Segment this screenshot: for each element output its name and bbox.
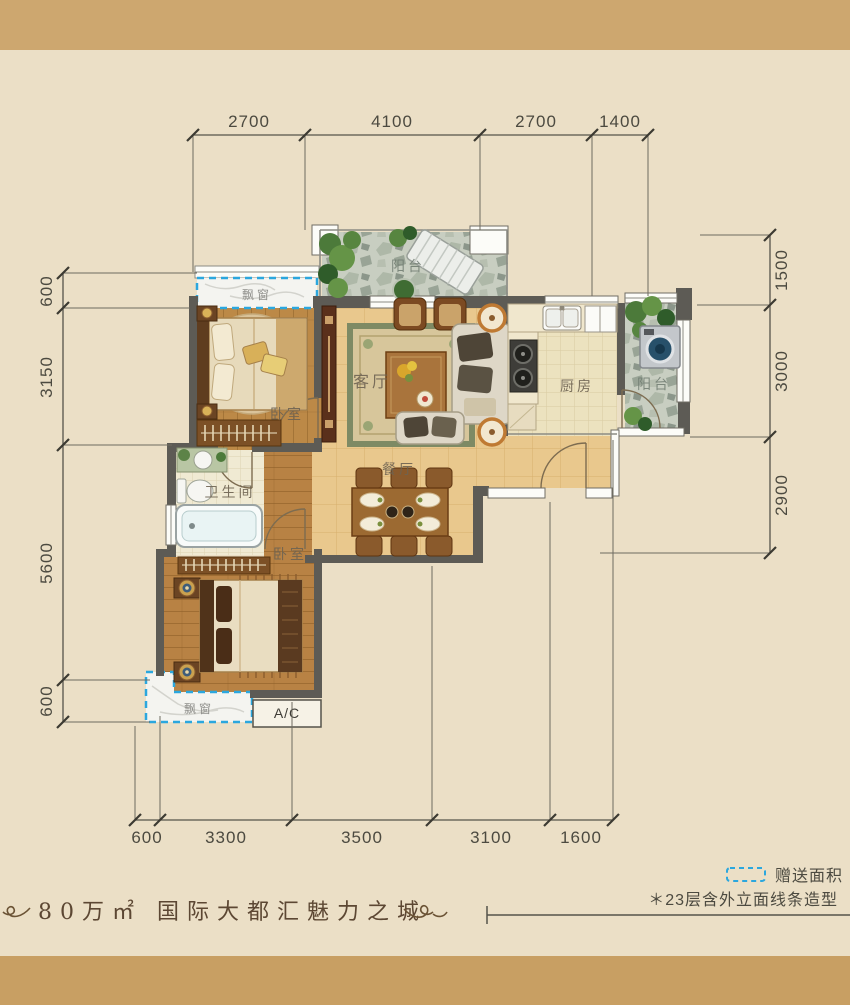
dim-bottom-3: 3500 (341, 828, 383, 847)
coffee-table (386, 352, 446, 418)
vanity (177, 448, 227, 472)
dim-right-2: 3000 (772, 350, 791, 392)
washing-machine (640, 326, 680, 368)
bed-bottom (200, 574, 302, 678)
dining-label: 餐厅 (382, 461, 416, 477)
bathroom-label: 卫生间 (205, 484, 256, 500)
balcony-right-label: 阳台 (637, 376, 671, 392)
dim-top-2: 4100 (371, 112, 413, 131)
dim-top-1: 2700 (228, 112, 270, 131)
dining-furniture (352, 468, 452, 556)
dim-right-1: 1500 (772, 249, 791, 291)
kraft-band-bottom (0, 956, 850, 1005)
dim-right-3: 2900 (772, 474, 791, 516)
lamp (202, 406, 212, 416)
bed-top (197, 318, 307, 410)
bedroom-top-label: 卧室 (270, 406, 304, 422)
bay-top-label: 飘窗 (242, 288, 272, 302)
sofa-loveseat (396, 412, 464, 444)
kitchen-label: 厨房 (560, 378, 594, 394)
sofa-main (452, 324, 512, 424)
bathtub (176, 505, 262, 547)
footer: 80万㎡ 国际大都汇魅力之城 (3, 899, 447, 925)
porch-right-wall (611, 430, 619, 496)
tv-console (322, 306, 336, 442)
bedroom-bottom-label: 卧室 (273, 546, 307, 562)
dim-bottom-1: 600 (131, 828, 162, 847)
floor-note: ＊23层含外立面线条造型 (648, 891, 838, 909)
bay-bottom-label: 飘窗 (184, 702, 214, 716)
dim-left-1: 600 (37, 275, 56, 306)
balcony-top-label: 阳台 (391, 258, 425, 274)
gift-area-label: 赠送面积 (775, 867, 843, 885)
ac-label: A/C (274, 705, 300, 721)
floor-plan-svg: 飘窗 飘窗 (0, 0, 850, 1005)
project-slogan: 80万㎡ 国际大都汇魅力之城 (38, 899, 427, 925)
dim-left-3: 5600 (37, 542, 56, 584)
wardrobe-top (197, 420, 281, 446)
porch-wall-left (488, 488, 545, 498)
kitchen-sink (543, 306, 581, 331)
wardrobe-bottom (178, 557, 270, 574)
lamp (202, 308, 212, 318)
ac-platform: A/C (253, 700, 321, 727)
dim-top-3: 2700 (515, 112, 557, 131)
dim-left-4: 600 (37, 685, 56, 716)
kraft-band-top (0, 0, 850, 50)
stove (510, 340, 537, 392)
dining-table (352, 488, 448, 536)
balcony-right-bottom-wall (618, 428, 684, 436)
dim-left-2: 3150 (37, 356, 56, 398)
dim-bottom-4: 3100 (470, 828, 512, 847)
dim-top-4: 1400 (599, 112, 641, 131)
porch-wall-right (586, 488, 612, 498)
living-label: 客厅 (353, 373, 391, 391)
floorplan-page: 飘窗 飘窗 (0, 0, 850, 1005)
dim-bottom-2: 3300 (205, 828, 247, 847)
dim-bottom-5: 1600 (560, 828, 602, 847)
